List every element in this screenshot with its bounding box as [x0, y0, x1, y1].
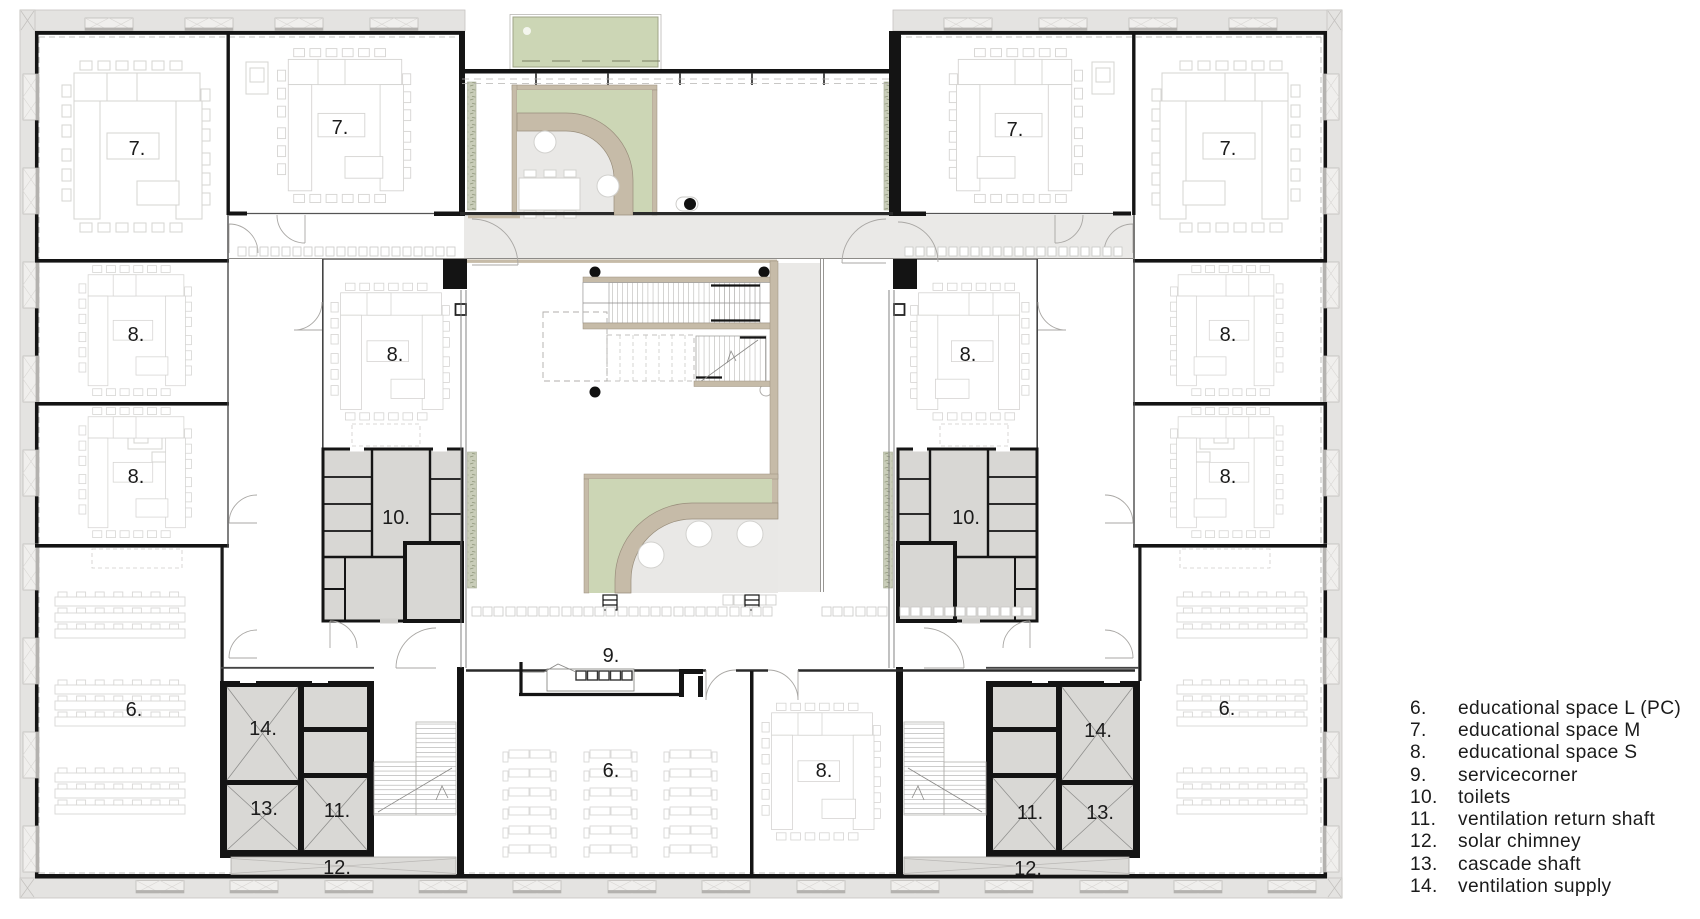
svg-text:12.: 12.: [323, 857, 351, 879]
svg-text:educational space S: educational space S: [1458, 742, 1637, 763]
svg-text:8.: 8.: [128, 324, 145, 346]
svg-text:servicecorner: servicecorner: [1458, 765, 1578, 786]
svg-text:ventilation return shaft: ventilation return shaft: [1458, 809, 1656, 830]
svg-text:7.: 7.: [129, 138, 146, 160]
svg-text:12.: 12.: [1410, 831, 1438, 852]
svg-text:10.: 10.: [952, 507, 980, 529]
svg-text:educational space L (PC): educational space L (PC): [1458, 698, 1681, 719]
svg-text:solar chimney: solar chimney: [1458, 831, 1581, 852]
svg-text:11.: 11.: [1017, 802, 1043, 824]
svg-text:8.: 8.: [816, 760, 833, 782]
svg-text:14.: 14.: [1084, 720, 1112, 742]
svg-text:9.: 9.: [1410, 765, 1427, 786]
svg-text:8.: 8.: [1220, 324, 1237, 346]
svg-text:13.: 13.: [1410, 854, 1438, 875]
svg-text:educational space M: educational space M: [1458, 720, 1641, 741]
svg-text:10.: 10.: [1410, 787, 1438, 808]
svg-text:8.: 8.: [1410, 742, 1427, 763]
svg-text:8.: 8.: [128, 466, 145, 488]
svg-text:6.: 6.: [603, 760, 620, 782]
svg-text:9.: 9.: [603, 645, 620, 667]
svg-text:cascade shaft: cascade shaft: [1458, 854, 1581, 875]
svg-text:7.: 7.: [1007, 119, 1024, 141]
svg-text:ventilation supply: ventilation supply: [1458, 876, 1612, 897]
svg-text:6.: 6.: [1410, 698, 1427, 719]
svg-text:7.: 7.: [1220, 138, 1237, 160]
svg-text:13.: 13.: [1086, 802, 1114, 824]
svg-text:11.: 11.: [1410, 809, 1436, 830]
svg-text:7.: 7.: [332, 117, 349, 139]
svg-text:6.: 6.: [126, 699, 143, 721]
svg-text:8.: 8.: [1220, 466, 1237, 488]
svg-text:11.: 11.: [324, 800, 350, 822]
svg-text:10.: 10.: [382, 507, 410, 529]
svg-text:14.: 14.: [249, 718, 277, 740]
svg-text:14.: 14.: [1410, 876, 1438, 897]
svg-text:8.: 8.: [387, 344, 404, 366]
svg-text:7.: 7.: [1410, 720, 1427, 741]
svg-text:toilets: toilets: [1458, 787, 1511, 808]
svg-text:6.: 6.: [1219, 698, 1236, 720]
svg-text:13.: 13.: [250, 798, 278, 820]
svg-text:8.: 8.: [960, 344, 977, 366]
svg-text:12.: 12.: [1014, 858, 1042, 880]
